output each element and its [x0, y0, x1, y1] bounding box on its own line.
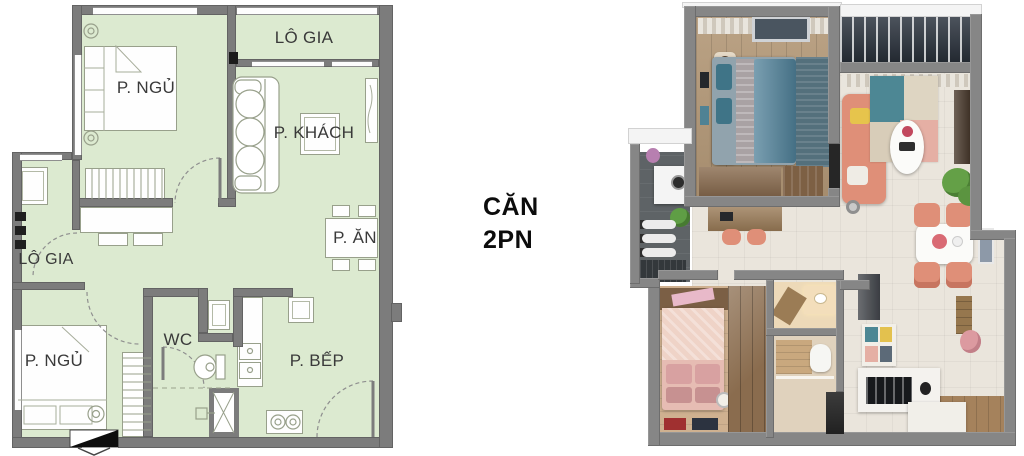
shelf-box-teal [865, 327, 878, 342]
room-label-bedroom-2: P. NGỦ [25, 351, 83, 371]
wall3d-left-lower [648, 278, 660, 446]
window-bedroom-1 [752, 16, 810, 42]
shelf-box-slate [880, 346, 892, 362]
loggia-pipe-3 [634, 248, 676, 257]
dining-chair-3d-2 [946, 203, 972, 227]
room-label-wc: WC [164, 330, 193, 350]
rug-patch-teal [870, 76, 904, 122]
wall3d-bed1-left [684, 6, 696, 202]
room-label-kitchen: P. BẾP [290, 351, 344, 371]
pergola-roof-edge [840, 4, 982, 17]
wall-wing-inner [72, 160, 80, 230]
roof-edge-loggia-left [628, 128, 692, 144]
plan-3d [628, 2, 1020, 454]
window-loggia-sill-1 [252, 61, 324, 67]
window-loggia-sill-2 [332, 61, 372, 67]
bed-master-throw [736, 59, 754, 163]
dining-plate [952, 236, 963, 247]
window-bed2-left [14, 330, 22, 410]
bed-second-pillow-1 [666, 364, 692, 384]
tv-cabinet-3d [954, 90, 971, 164]
room-label-loggia-top: LÔ GIA [275, 28, 334, 48]
window-bed1-left [74, 55, 82, 155]
wall-wc-left [143, 290, 153, 437]
wardrobe-bedroom-2 [728, 286, 766, 438]
sofa-cushion-yellow [850, 108, 870, 124]
doorway-entry-hall [826, 392, 844, 434]
wall-bottom-a [12, 437, 82, 448]
wall-kitchen-top [233, 288, 293, 297]
wall-wc-stub [198, 288, 208, 333]
wall-right [379, 5, 393, 448]
wall-bed1-right [227, 5, 236, 207]
tv-cabinet [365, 78, 378, 143]
floor-lamp [846, 200, 860, 214]
desk-chair-1 [98, 233, 128, 246]
loggia-flower-pot [646, 148, 660, 163]
bed-second-pillow-3 [666, 387, 692, 403]
service-shaft [209, 388, 239, 437]
fridge [288, 297, 314, 323]
shelf-box-pink [865, 346, 878, 362]
wall-wc-mid [198, 333, 233, 342]
wall-bed1-door-corner [218, 198, 236, 207]
mat-red [664, 418, 686, 430]
shower-glass [776, 376, 834, 379]
wall3d-kitchen-stub [840, 280, 870, 290]
pergola-loggia [840, 17, 982, 63]
wardrobe-1 [85, 168, 165, 200]
dining-chair-2 [358, 205, 376, 217]
window-top-1 [93, 7, 197, 15]
wall3d-bath-right [836, 280, 844, 392]
floorplan-sheet: P. NGỦ LÔ GIA P. KHÁCH P. ĂN LÔ GIA P. N… [0, 0, 1024, 456]
dresser-bedroom-1 [699, 167, 781, 197]
room-label-loggia-left: LÔ GIA [18, 251, 73, 269]
wall-art-bedroom-1b [700, 106, 709, 125]
loggia-pipe-2 [634, 234, 676, 243]
bed-second-sheet [662, 308, 724, 360]
loggia-pipe-1 [634, 220, 676, 229]
wall3d-right-upper [970, 14, 982, 240]
room-label-bedroom-1: P. NGỦ [117, 78, 175, 98]
shower-tray [776, 340, 812, 374]
wall3d-loggia-left-outer [630, 144, 640, 284]
bed-master-pillow-2 [716, 98, 732, 124]
wall-bed2-top [12, 282, 85, 290]
mat-dark [692, 418, 718, 430]
kitchen-flowers [960, 330, 981, 353]
bed-second-pillow-2 [695, 364, 720, 384]
wall3d-bath-divider [766, 328, 844, 336]
wall3d-bed1-top [684, 6, 840, 17]
doorway-bedroom-1 [829, 144, 840, 188]
desk-laptop [720, 212, 733, 221]
window-wing [20, 154, 62, 161]
coffee-table-flowers [902, 126, 913, 137]
unit-type-line-2: 2PN [483, 224, 539, 257]
bath-sink [814, 293, 827, 304]
bed-master-pillow-1 [716, 64, 732, 90]
toilet-3d [810, 344, 831, 372]
study-stool-1 [722, 229, 741, 245]
study-stool-2 [747, 229, 766, 245]
wall3d-corridor-b [734, 270, 844, 280]
wall3d-corridor-a [658, 270, 718, 280]
dining-chair-3d-4 [946, 262, 972, 288]
room-label-living: P. KHÁCH [274, 123, 355, 143]
bed-master-duvet [754, 59, 796, 163]
dining-flowers [932, 234, 947, 249]
kitchen-wall-shelf [956, 296, 972, 334]
shelf-box-yellow [880, 327, 892, 342]
wall3d-bottom [648, 432, 1016, 446]
coffee-table-tray [899, 142, 915, 151]
bench-bedroom-1 [783, 166, 823, 199]
kitchen-sink-2 [239, 362, 261, 379]
bed-2 [18, 325, 107, 430]
wall-bed1-bottom [72, 198, 173, 207]
unit-type-label: CĂN 2PN [483, 191, 539, 257]
wc-sink [208, 300, 230, 330]
dining-chair-3d-1 [914, 203, 940, 227]
wall-art-bedroom-1 [700, 72, 709, 88]
wall3d-bed1-bottom [684, 196, 840, 207]
cooktop [866, 377, 912, 404]
washing-machine [18, 167, 48, 205]
dining-chair-1 [332, 205, 350, 217]
wall3d-bed1-right-a [828, 6, 840, 144]
wall-bottom-b [118, 437, 385, 448]
room-label-dining: P. ĂN [333, 228, 377, 248]
wall3d-right-lower [1004, 238, 1016, 446]
desk-chair-2 [133, 233, 163, 246]
dining-chair-3 [332, 259, 350, 271]
wall3d-bath-left [766, 280, 774, 438]
window-top-2 [237, 7, 377, 15]
kettle [920, 382, 931, 395]
wall3d-loggia-sill [840, 62, 982, 73]
unit-type-line-1: CĂN [483, 191, 539, 224]
desk [80, 207, 173, 233]
dining-chair-4 [358, 259, 376, 271]
wall-right-notch [391, 303, 402, 322]
sofa-cushion-white [847, 166, 868, 185]
stove [266, 410, 303, 434]
dining-chair-3d-3 [914, 262, 940, 288]
